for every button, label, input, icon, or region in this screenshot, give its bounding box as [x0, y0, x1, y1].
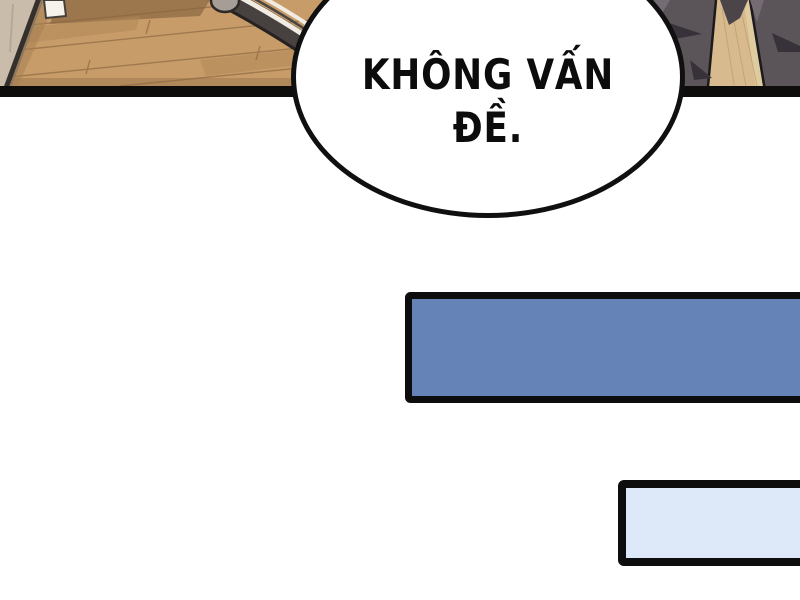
caption-box-blue-rect	[409, 296, 800, 400]
caption-box-light	[618, 480, 800, 566]
speech-text-line1: KHÔNG VẤN	[325, 48, 651, 101]
speech-text: KHÔNG VẤN ĐỀ.	[325, 48, 651, 154]
caption-box-blue	[405, 292, 800, 403]
bicycle-pedal	[211, 0, 239, 12]
comic-page: KHÔNG VẤN ĐỀ.	[0, 0, 800, 600]
caption-box-light-rect	[622, 484, 800, 562]
speech-text-line2: ĐỀ.	[325, 101, 651, 154]
wall-outlet	[44, 0, 66, 18]
speech-bubble: KHÔNG VẤN ĐỀ.	[291, 0, 685, 218]
